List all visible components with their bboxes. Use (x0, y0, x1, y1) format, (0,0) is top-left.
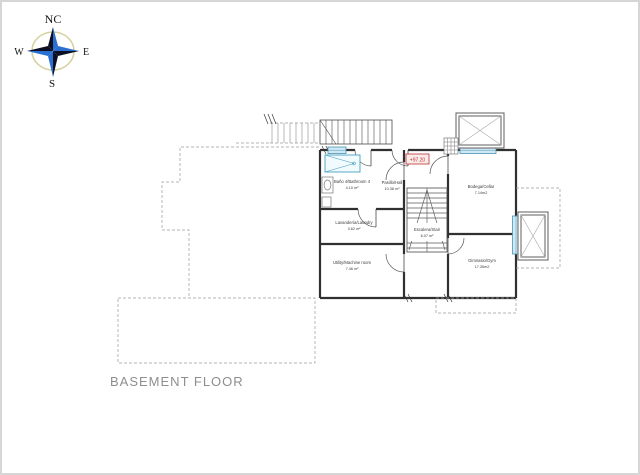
room-label-cellar: Bodega/Cellar 7.14m2 (468, 184, 495, 195)
stair-label-backing (409, 223, 445, 241)
compass-star (27, 27, 79, 77)
dashed-footprint-outline (118, 147, 319, 363)
room-area: 3.62 m² (348, 227, 362, 231)
dashed-terrace-outline (118, 298, 315, 363)
room-area: 10.38 m² (385, 187, 401, 191)
room-name: Escalera/Stair (414, 227, 441, 232)
page-title: BASEMENT FLOOR (110, 374, 244, 389)
room-name: Baño 4/Bathroom 4 (334, 179, 371, 184)
floor-plan-page: NC W E S (0, 0, 640, 475)
dashed-bottom-strip (436, 298, 516, 313)
room-name: Bodega/Cellar (468, 184, 495, 189)
room-label-laundry: Lavandería/Laundry 3.62 m² (335, 220, 373, 231)
vent-grid (444, 138, 458, 154)
compass-north-label: NC (45, 12, 62, 26)
elevation-badge-text: +97.20 (410, 158, 426, 164)
toilet-fixture (322, 197, 331, 207)
room-area: 7.14m2 (475, 191, 488, 195)
compass-south-label: S (49, 78, 55, 90)
room-name: Pasillo/Hall (382, 180, 403, 185)
sink-fixture (322, 177, 333, 193)
room-area: 7.46 m² (346, 267, 360, 271)
elevation-badge: +97.20 (406, 154, 429, 164)
room-label-gym: Gimnasio/Gym 17.35m2 (468, 258, 496, 269)
lightwell-right (518, 212, 548, 260)
room-label-bathroom: Baño 4/Bathroom 4 4.10 m² (334, 179, 371, 190)
room-area: 4.10 m² (346, 186, 360, 190)
room-label-utility: Utility/Machine room 7.46 m² (333, 260, 371, 271)
exterior-stair (236, 114, 392, 144)
floor-plan-canvas: NC W E S (2, 2, 640, 475)
bathtub-fixture (325, 155, 360, 172)
compass-east-label: E (83, 47, 89, 58)
lightwell-top-right (456, 113, 504, 148)
room-area: 17.35m2 (475, 265, 490, 269)
exterior-stair-dashed-treads (272, 123, 314, 143)
exterior-stair-treads (326, 120, 386, 144)
wall-tick-stair-head (264, 114, 276, 124)
compass-west-label: W (14, 47, 24, 58)
room-label-stair: Escalera/Stair 6.07 m² (409, 223, 445, 241)
room-name: Gimnasio/Gym (468, 258, 496, 263)
room-name: Utility/Machine room (333, 260, 371, 265)
room-area: 6.07 m² (421, 234, 435, 238)
room-label-hall: Pasillo/Hall 10.38 m² (382, 180, 403, 191)
compass-rose: NC W E S (14, 12, 89, 90)
room-name: Lavandería/Laundry (335, 220, 373, 225)
stair-break-line (320, 120, 336, 144)
interior-stair (407, 188, 447, 252)
